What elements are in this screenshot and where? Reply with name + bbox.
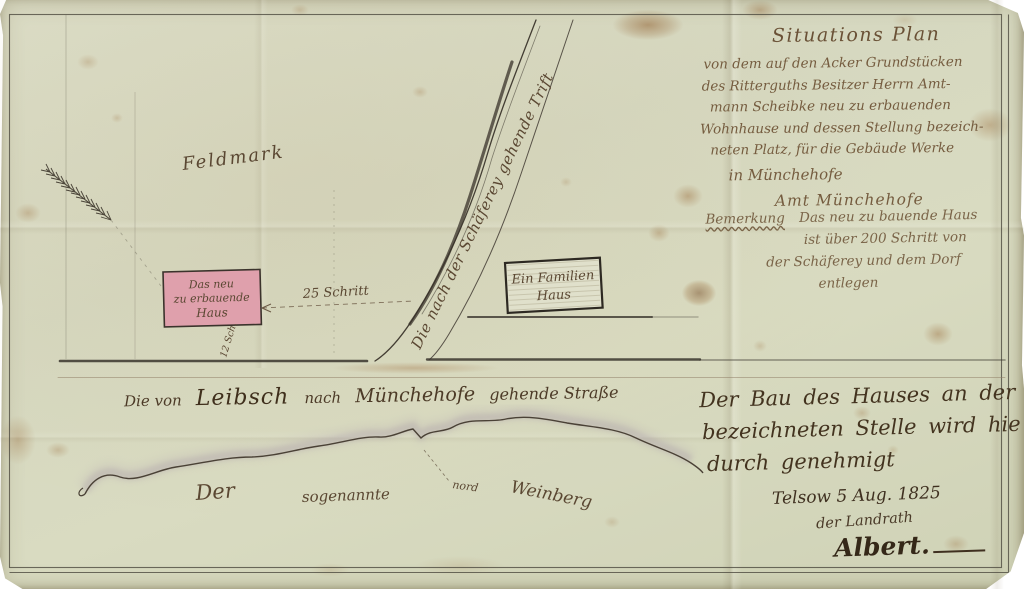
family-house-label-line: Haus: [535, 287, 571, 304]
new-house-plot: Das neu zu erbauende Haus: [163, 269, 261, 327]
title-place-line: in Münchehofe: [728, 162, 1014, 186]
signature-name: Albert.: [834, 530, 931, 562]
distance-label: 25 Schritt: [301, 284, 370, 303]
street-label-part: Die von: [124, 391, 182, 410]
note-line: Das neu zu bauende Haus: [799, 207, 978, 226]
north-arrow-icon: [41, 164, 161, 286]
scanned-plan-page: Das neu zu erbauende Haus Ein Familien H…: [0, 0, 1024, 589]
signature-flourish: [933, 540, 985, 553]
signature: Albert.: [834, 528, 986, 562]
weinberg-hill: [79, 412, 703, 495]
distance-measure-line: [262, 301, 414, 312]
plan-title: Situations Plan: [699, 22, 1013, 47]
hill-label-name: Weinberg: [509, 477, 594, 512]
street-label-part: nach: [304, 389, 341, 408]
new-house-label-line: Das neu: [188, 277, 235, 291]
title-block: Situations Plan von dem auf den Acker Gr…: [699, 22, 1015, 213]
side-distance-label: 12 Sch.: [218, 321, 239, 359]
field-label: Feldmark: [180, 142, 286, 175]
hill-label-middle: sogenannte: [302, 485, 391, 506]
family-house-plot: Ein Familien Haus: [505, 258, 603, 313]
title-line: neten Platz, für die Gebäude Werke: [710, 137, 1014, 162]
hill-label-article: Der: [194, 478, 238, 505]
street-label-part: gehende Straße: [489, 383, 619, 404]
hill-direction-label: nord: [452, 478, 480, 494]
note-block: Bemerkung Das neu zu bauende Haus ist üb…: [705, 203, 1012, 296]
street-label-part: Leibsch: [196, 384, 290, 411]
new-house-label-line: Haus: [195, 305, 228, 320]
note-line: entlegen: [818, 269, 1012, 294]
new-house-label-line: zu erbauende: [173, 291, 251, 306]
title-line: Wohnhause und dessen Stellung bezeich-: [700, 116, 1014, 141]
street-label-part: Münchehofe: [355, 383, 475, 407]
approval-block: Der Bau des Hauses an der bezeichneten S…: [699, 376, 1024, 480]
note-heading: Bemerkung: [705, 210, 785, 227]
